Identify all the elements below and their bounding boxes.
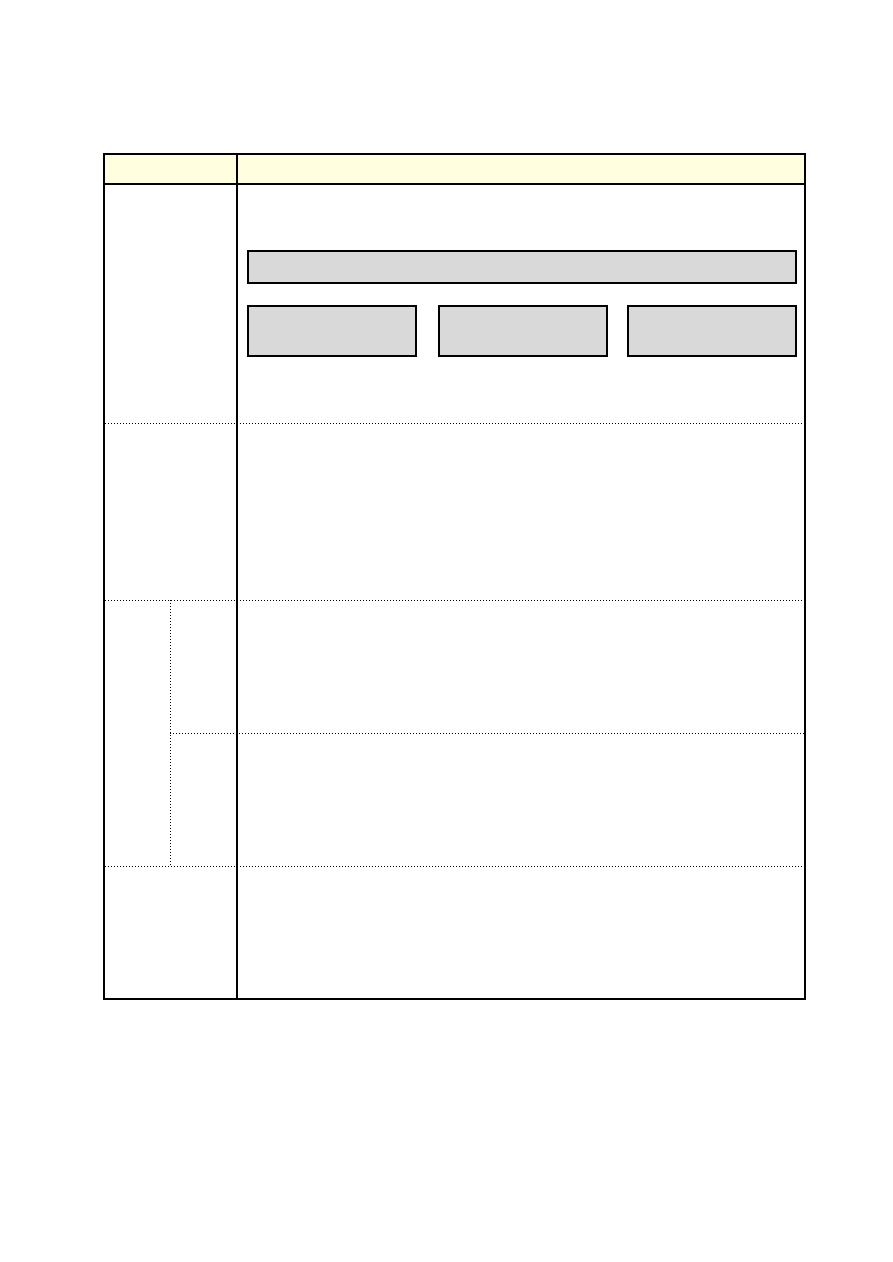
row-separator-1 <box>105 423 804 424</box>
placeholder-box-3 <box>627 305 797 357</box>
sub-column-divider <box>170 600 171 866</box>
header-cell-right <box>236 155 804 183</box>
placeholder-bar <box>247 250 797 284</box>
row-separator-2 <box>105 600 804 601</box>
column-divider <box>236 155 238 998</box>
placeholder-box-2 <box>438 305 608 357</box>
layout-table <box>103 153 806 1000</box>
table-header-row <box>105 155 804 185</box>
row-separator-3 <box>105 866 804 867</box>
sub-row-separator <box>170 733 804 734</box>
header-cell-left <box>105 155 236 183</box>
document-page <box>0 0 893 1262</box>
placeholder-box-1 <box>247 305 417 357</box>
